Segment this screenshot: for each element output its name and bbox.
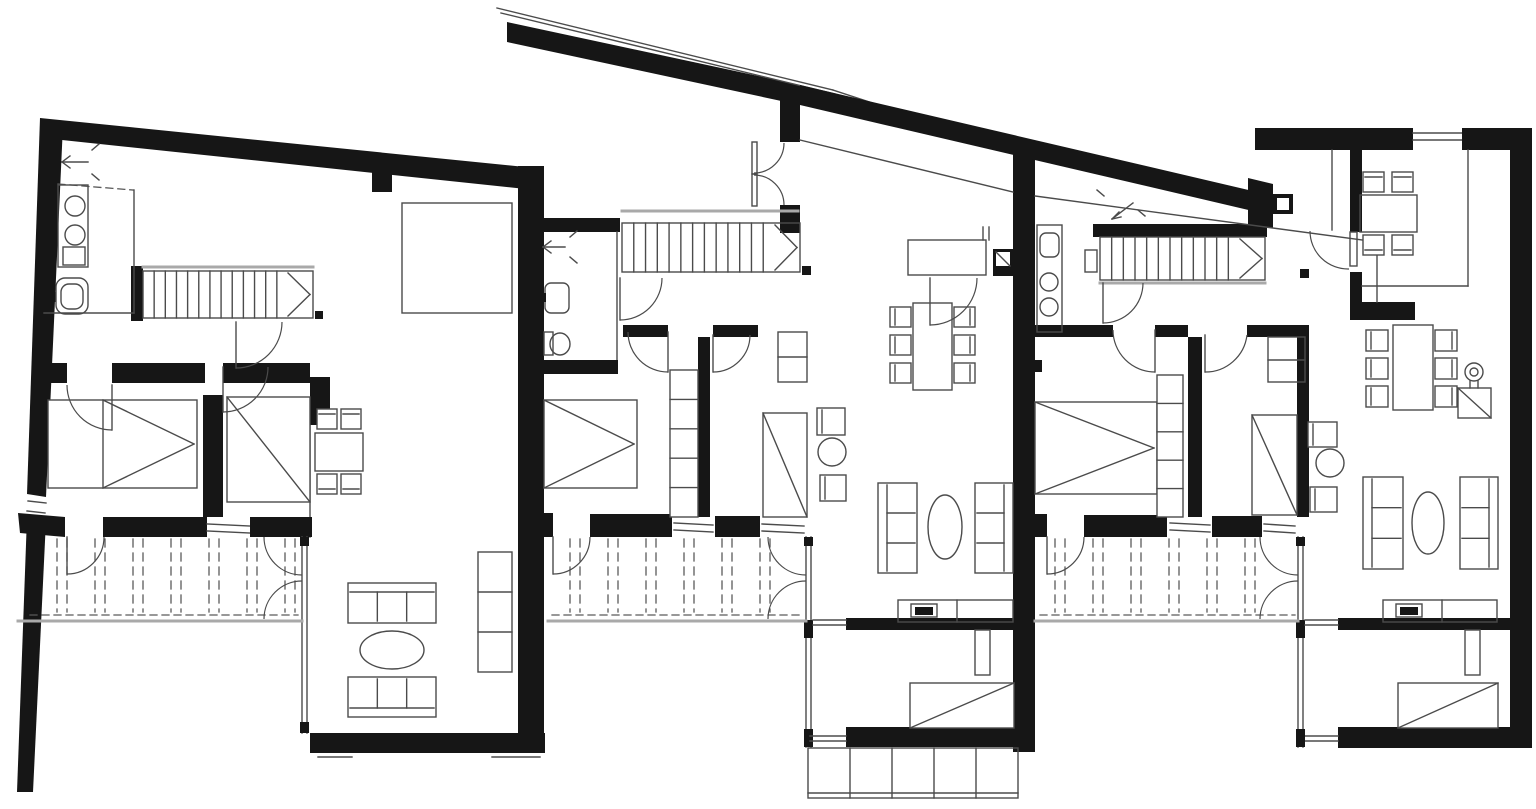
unit3-kitchen [1037, 225, 1062, 332]
unit1-bedrooms [48, 397, 310, 502]
unit3-terrace [1035, 539, 1298, 621]
unit1-terrace [18, 539, 302, 621]
unit1-stairs [143, 271, 313, 318]
unit1-living-dining [315, 409, 512, 717]
floor-plan [0, 0, 1536, 809]
unit2-bedrooms [544, 332, 807, 517]
unit2-stairs [622, 223, 800, 272]
unit2-kitchen-bath [540, 227, 989, 355]
unit2-living-dining [808, 303, 1018, 798]
unit3-living-dining [1308, 172, 1498, 728]
unit2-walls [497, 8, 1026, 747]
floor-plan-canvas [0, 0, 1536, 809]
unit3-bedrooms [1035, 337, 1305, 517]
